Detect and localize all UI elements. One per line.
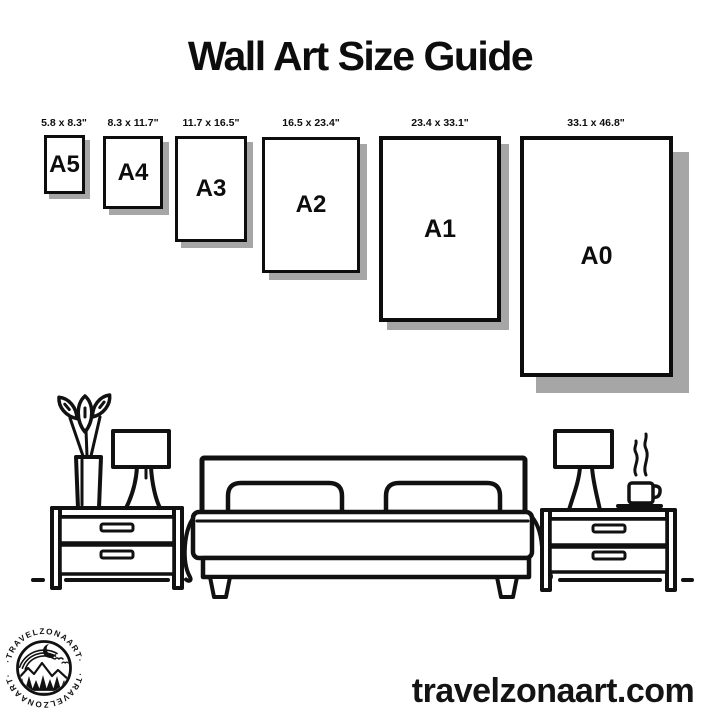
- a0-dimension-label: 33.1 x 46.8": [526, 116, 666, 130]
- plant-in-vase: [55, 392, 114, 508]
- lamp-shade: [113, 431, 169, 467]
- page-title: Wall Art Size Guide: [0, 33, 720, 80]
- size-code-a1: A1: [424, 215, 456, 244]
- website-url: travelzonaart.com: [400, 672, 706, 711]
- bird-icon: [62, 662, 68, 663]
- size-frame-a0: A0: [520, 136, 673, 377]
- mattress: [193, 512, 532, 558]
- size-frame-a2: A2: [262, 137, 360, 273]
- lamp-base: [569, 467, 580, 510]
- left-table-lamp: [113, 431, 169, 508]
- drawer-handle: [101, 551, 133, 558]
- drawer-handle: [593, 525, 625, 532]
- size-code-a2: A2: [296, 191, 327, 219]
- size-frame-a5: A5: [44, 135, 85, 194]
- double-bed: [185, 458, 551, 597]
- right-table-lamp: [555, 431, 612, 510]
- drawer-handle: [593, 552, 625, 559]
- cup-body: [629, 483, 653, 503]
- wall-art-size-guide-poster: Wall Art Size Guide 5.8 x 8.3" 8.3 x 11.…: [0, 0, 720, 720]
- size-code-a3: A3: [196, 175, 227, 203]
- bed-leg: [210, 577, 230, 597]
- a2-dimension-label: 16.5 x 23.4": [241, 116, 381, 130]
- pillow: [228, 483, 342, 512]
- vase: [76, 457, 101, 508]
- plant-stem: [86, 430, 87, 456]
- size-code-a5: A5: [49, 151, 80, 179]
- size-code-a4: A4: [118, 159, 149, 187]
- size-frame-a3: A3: [175, 136, 247, 242]
- size-frame-a1: A1: [379, 136, 501, 322]
- pillow: [386, 483, 500, 512]
- bed-base: [203, 558, 529, 577]
- lamp-shade: [555, 431, 612, 467]
- bed-leg: [497, 577, 517, 597]
- steam-icon: [645, 434, 647, 475]
- steam-icon: [635, 441, 637, 475]
- size-code-a0: A0: [581, 242, 613, 271]
- size-frame-a4: A4: [103, 136, 163, 209]
- lamp-base: [592, 467, 600, 510]
- lamp-base: [151, 467, 160, 508]
- drawer-handle: [101, 524, 133, 531]
- a1-dimension-label: 23.4 x 33.1": [370, 116, 510, 130]
- plant-stem: [91, 417, 100, 456]
- left-nightstand: [52, 508, 182, 588]
- bird-icon: [55, 658, 63, 659]
- bedroom-illustration: [0, 378, 720, 608]
- steaming-coffee-cup: [618, 434, 661, 506]
- travelzonaart-logo: ·TRAVELZONAART· ·TRAVELZONAART·: [0, 618, 92, 718]
- lamp-base: [126, 467, 137, 508]
